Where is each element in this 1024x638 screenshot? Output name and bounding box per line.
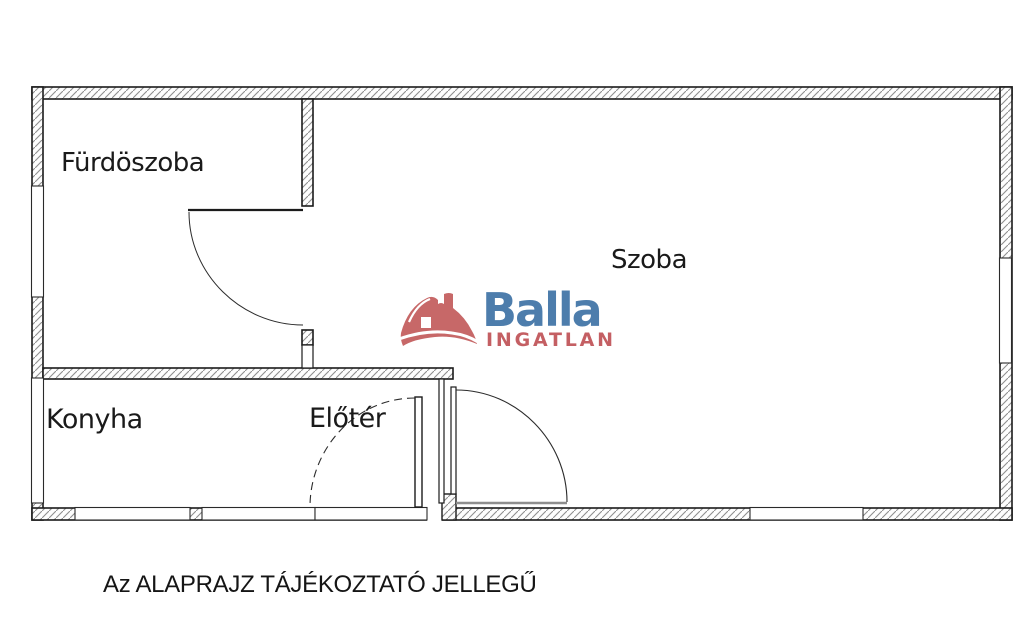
windows [32,186,1012,520]
house-shape [401,293,477,346]
house-icon [397,291,479,353]
room-label-konyha: Konyha [46,406,143,434]
bathroom-door-arc [189,212,303,325]
room-label-szoba: Szoba [611,247,687,274]
wall-bathroom-upper [302,99,313,206]
house-swoosh-2 [402,344,477,348]
window-left-upper [32,186,44,297]
window-bottom-2 [202,508,315,521]
house-window [421,317,431,328]
jamb-right [451,387,456,494]
window-right [1000,258,1012,363]
window-bottom-4 [750,508,863,521]
wall-top [32,87,1012,99]
disclaimer-text: Az ALAPRAJZ TÁJÉKOZTATÓ JELLEGŰ [103,571,536,599]
door-jamb [302,345,313,368]
jamb-left [439,379,444,503]
hall-room-divider [439,379,456,503]
logo-subbrand-text: INGATLAN [486,331,616,350]
threshold-gap [427,507,442,521]
room-label-furdoszoba: Fürdöszoba [61,150,204,177]
room-door-arc [456,390,567,502]
wall-bathroom-stub [302,330,313,345]
window-bottom-1 [75,508,190,521]
hall-door-leaf [415,397,422,507]
window-left-lower [32,378,44,503]
logo-brand-text: Balla [482,287,601,333]
floorplan-image: Fürdöszoba Szoba Konyha Előtér Balla ING… [0,0,1024,638]
window-bottom-3 [315,508,427,521]
room-label-eloter: Előtér [309,405,385,433]
wall-bathroom-kitchen [43,368,453,379]
interior-walls [43,99,453,379]
agency-logo: Balla INGATLAN [397,289,622,353]
